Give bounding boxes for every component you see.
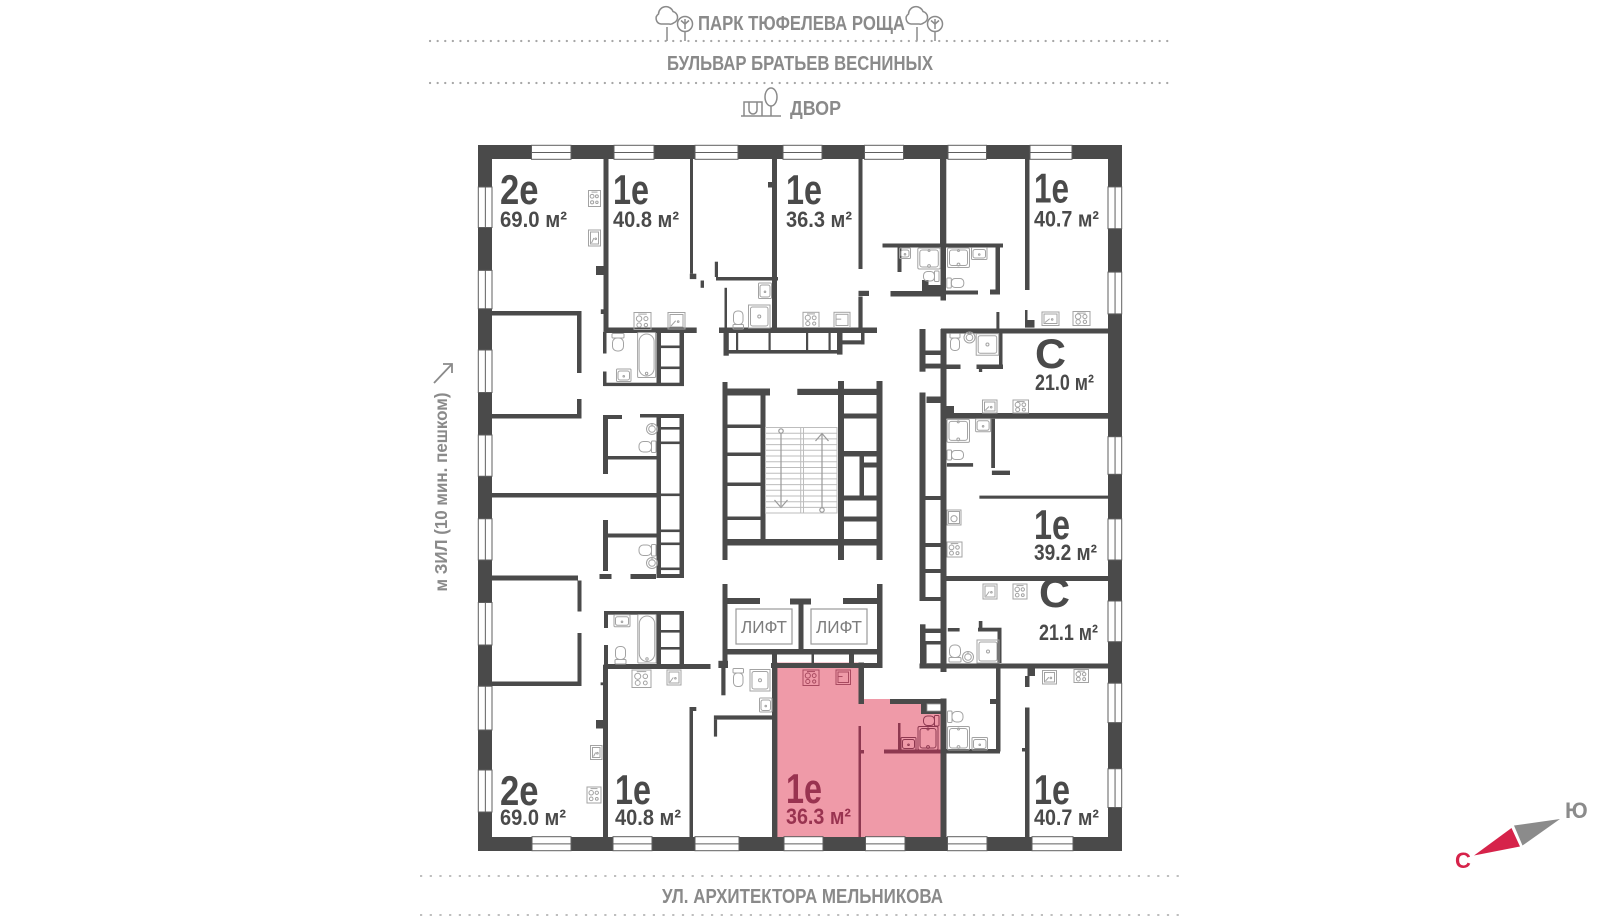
svg-text:1е: 1е bbox=[786, 166, 822, 213]
svg-text:Ю: Ю bbox=[1565, 798, 1588, 823]
svg-text:ЛИФТ: ЛИФТ bbox=[816, 617, 862, 637]
svg-text:40.8 м²: 40.8 м² bbox=[613, 207, 679, 232]
svg-text:40.7 м²: 40.7 м² bbox=[1034, 207, 1099, 232]
svg-text:69.0 м²: 69.0 м² bbox=[500, 207, 567, 232]
svg-text:С: С bbox=[1455, 848, 1471, 873]
svg-text:м ЗИЛ (10 мин. пешком): м ЗИЛ (10 мин. пешком) bbox=[431, 393, 451, 592]
svg-text:21.0 м²: 21.0 м² bbox=[1035, 370, 1094, 395]
svg-text:С: С bbox=[1039, 569, 1070, 616]
svg-text:ПАРК ТЮФЕЛЕВА РОЩА: ПАРК ТЮФЕЛЕВА РОЩА bbox=[698, 13, 905, 35]
svg-text:1е: 1е bbox=[1034, 165, 1069, 212]
svg-text:40.7 м²: 40.7 м² bbox=[1034, 805, 1099, 830]
svg-text:2е: 2е bbox=[500, 166, 539, 213]
svg-text:36.3 м²: 36.3 м² bbox=[786, 804, 851, 829]
svg-text:21.1 м²: 21.1 м² bbox=[1039, 620, 1098, 645]
svg-text:39.2 м²: 39.2 м² bbox=[1034, 540, 1097, 565]
svg-text:40.8 м²: 40.8 м² bbox=[615, 805, 681, 830]
svg-text:УЛ. АРХИТЕКТОРА МЕЛЬНИКОВА: УЛ. АРХИТЕКТОРА МЕЛЬНИКОВА bbox=[662, 886, 943, 908]
svg-text:БУЛЬВАР БРАТЬЕВ ВЕСНИНЫХ: БУЛЬВАР БРАТЬЕВ ВЕСНИНЫХ bbox=[667, 53, 934, 75]
svg-text:36.3 м²: 36.3 м² bbox=[786, 207, 852, 232]
svg-text:ДВОР: ДВОР bbox=[790, 98, 841, 120]
svg-text:69.0 м²: 69.0 м² bbox=[500, 805, 566, 830]
svg-text:1е: 1е bbox=[613, 166, 649, 213]
svg-text:ЛИФТ: ЛИФТ bbox=[741, 617, 787, 637]
